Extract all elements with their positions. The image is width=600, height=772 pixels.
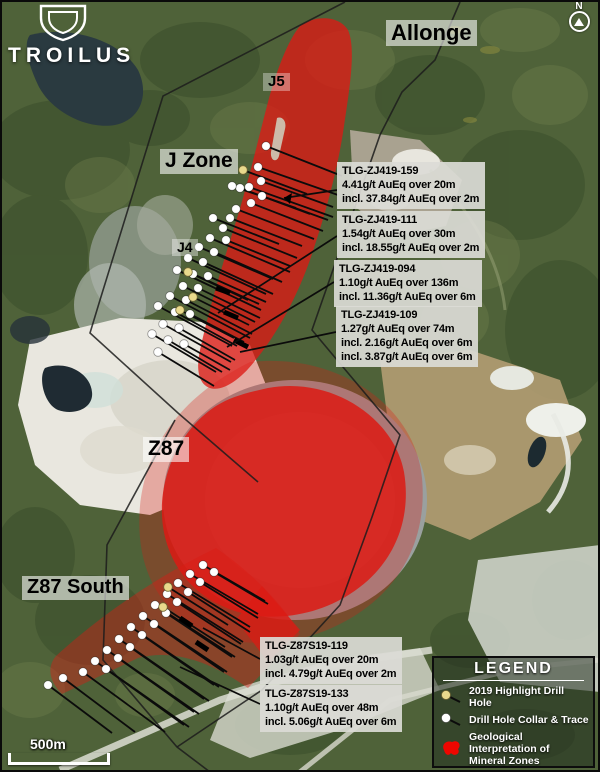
drill-hole-collar [59, 674, 68, 683]
zone-label-z87-south: Z87 South [22, 576, 129, 600]
drill-hole-collar [194, 284, 203, 293]
north-label: N [565, 2, 593, 11]
hole-id: TLG-ZJ419-111 [342, 213, 479, 227]
drill-hole-collar [206, 234, 215, 243]
drill-hole-collar [226, 214, 235, 223]
drill-hole-collar [245, 183, 254, 192]
drill-hole-collar [210, 568, 219, 577]
drill-hole-collar [228, 182, 237, 191]
drill-hole-collar [209, 214, 218, 223]
annotation-tlg-z87s19-119: TLG-Z87S19-119 1.03g/t AuEq over 20m inc… [260, 637, 402, 684]
drill-hole-collar [114, 654, 123, 663]
drill-hole-collar [102, 665, 111, 674]
highlight-drill-hole-collar [239, 166, 248, 175]
mineral-zone-blob-icon [440, 740, 464, 758]
drill-hole-collar [103, 646, 112, 655]
assay-line: incl. 2.16g/t AuEq over 6m [341, 336, 472, 350]
drill-hole-collar [138, 631, 147, 640]
drill-hole-collar [79, 668, 88, 677]
drill-hole-collar [126, 643, 135, 652]
north-triangle-icon [574, 18, 584, 26]
drill-hole-collar [219, 224, 228, 233]
assay-line: incl. 18.55g/t AuEq over 2m [342, 241, 479, 255]
legend-divider [443, 680, 584, 681]
drill-hole-collar [127, 623, 136, 632]
legend-label: Drill Hole Collar & Trace [469, 714, 589, 726]
north-arrow: N [565, 2, 593, 32]
zone-label-z87: Z87 [143, 437, 189, 462]
brand-name: TROILUS [8, 44, 135, 68]
legend-item-drill-hole-collar: Drill Hole Collar & Trace [434, 710, 593, 730]
assay-line: 1.10g/t AuEq over 48m [265, 701, 396, 715]
drill-hole-collar [210, 248, 219, 257]
drill-hole-collar [262, 142, 271, 151]
assay-line: 1.54g/t AuEq over 30m [342, 227, 479, 241]
scale-line [8, 753, 110, 765]
drill-trace [48, 685, 112, 733]
highlight-drill-hole-collar [184, 268, 193, 277]
drill-hole-collar [91, 657, 100, 666]
hole-id: TLG-ZJ419-159 [342, 164, 479, 178]
drill-hole-collar [196, 578, 205, 587]
scale-label: 500m [30, 736, 110, 752]
drill-hole-collar [186, 570, 195, 579]
hole-id: TLG-Z87S19-119 [265, 639, 396, 653]
drill-hole-collar-icon [440, 711, 464, 729]
zone-label-j5: J5 [263, 73, 290, 91]
legend-title: LEGEND [434, 660, 593, 678]
drill-hole-collar [179, 282, 188, 291]
zone-label-j-zone: J Zone [160, 149, 238, 174]
drill-hole-collar [175, 324, 184, 333]
drill-hole-collar [159, 320, 168, 329]
exploration-map-figure: TROILUS N Allonge J5 J Zone J4 Z87 Z87 S… [0, 0, 600, 772]
drill-hole-collar [232, 205, 241, 214]
zone-label-j4: J4 [172, 239, 198, 256]
assay-line: 1.27g/t AuEq over 74m [341, 322, 472, 336]
highlight-drill-hole-collar [176, 306, 185, 315]
assay-line: incl. 37.84g/t AuEq over 2m [342, 192, 479, 206]
drill-hole-collar [254, 163, 263, 172]
drill-hole-collar [166, 292, 175, 301]
annotation-tlg-z87s19-133: TLG-Z87S19-133 1.10g/t AuEq over 48m inc… [260, 685, 402, 732]
legend: LEGEND 2019 Highlight Drill Hole Drill H… [432, 656, 595, 768]
legend-label: 2019 Highlight Drill Hole [469, 685, 589, 709]
drill-hole-collar [258, 192, 267, 201]
assay-line: incl. 4.79g/t AuEq over 2m [265, 667, 396, 681]
highlight-drill-hole-collar [159, 603, 168, 612]
highlight-drill-hole-collar [164, 583, 173, 592]
drill-hole-collar [204, 272, 213, 281]
annotation-tlg-zj419-111: TLG-ZJ419-111 1.54g/t AuEq over 30m incl… [337, 211, 485, 258]
troilus-logo: TROILUS [8, 4, 135, 68]
drill-hole-collar [151, 601, 160, 610]
legend-label: Geological Interpretation of Mineral Zon… [469, 731, 587, 767]
drill-hole-collar [257, 177, 266, 186]
assay-line: incl. 11.36g/t AuEq over 6m [339, 290, 476, 304]
drill-hole-collar [150, 620, 159, 629]
drill-hole-collar [180, 340, 189, 349]
drill-hole-collar [173, 266, 182, 275]
legend-item-mineral-zones: Geological Interpretation of Mineral Zon… [434, 730, 593, 768]
drill-hole-collar [247, 199, 256, 208]
drill-hole-collar [154, 302, 163, 311]
drill-hole-collar [148, 330, 157, 339]
assay-line: incl. 5.06g/t AuEq over 6m [265, 715, 396, 729]
scale-bar: 500m [8, 736, 110, 765]
north-circle-icon [569, 11, 590, 32]
drill-hole-collar [139, 612, 148, 621]
drill-hole-collar [44, 681, 53, 690]
annotation-tlg-zj419-159: TLG-ZJ419-159 4.41g/t AuEq over 20m incl… [337, 162, 485, 209]
hole-id: TLG-ZJ419-109 [341, 308, 472, 322]
drill-hole-collar [199, 561, 208, 570]
assay-line: 1.03g/t AuEq over 20m [265, 653, 396, 667]
drill-hole-collar [199, 258, 208, 267]
assay-line: 4.41g/t AuEq over 20m [342, 178, 479, 192]
troilus-shield-icon [36, 4, 90, 42]
drill-hole-collar [222, 236, 231, 245]
drill-hole-collar [173, 598, 182, 607]
drill-hole-collar [184, 588, 193, 597]
hole-id: TLG-ZJ419-094 [339, 262, 476, 276]
drill-hole-collar [115, 635, 124, 644]
highlight-drill-hole-icon [440, 688, 464, 706]
highlight-drill-hole-collar [189, 293, 198, 302]
hole-id: TLG-Z87S19-133 [265, 687, 396, 701]
drill-hole-collar [236, 184, 245, 193]
legend-item-highlight-drill-hole: 2019 Highlight Drill Hole [434, 684, 593, 710]
zone-label-allonge: Allonge [386, 20, 477, 46]
drill-hole-collar [186, 310, 195, 319]
assay-line: 1.10g/t AuEq over 136m [339, 276, 476, 290]
annotation-tlg-zj419-094: TLG-ZJ419-094 1.10g/t AuEq over 136m inc… [334, 260, 482, 307]
assay-line: incl. 3.87g/t AuEq over 6m [341, 350, 472, 364]
drill-hole-collar [164, 336, 173, 345]
drill-hole-collar [174, 579, 183, 588]
drill-hole-collar [154, 348, 163, 357]
annotation-tlg-zj419-109: TLG-ZJ419-109 1.27g/t AuEq over 74m incl… [336, 306, 478, 367]
